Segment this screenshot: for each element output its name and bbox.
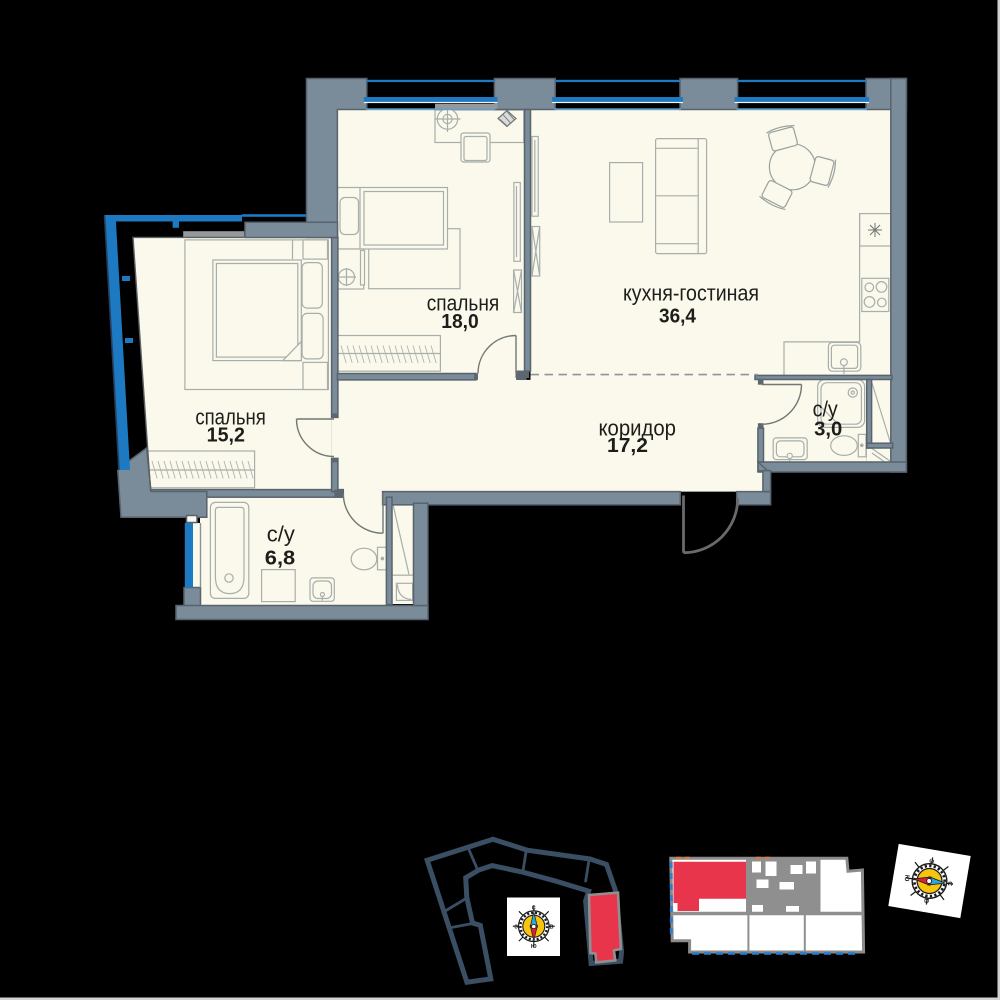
svg-text:15,2: 15,2 [207,423,245,446]
svg-text:36,4: 36,4 [659,305,697,328]
svg-text:17,2: 17,2 [607,434,648,457]
svg-text:с/у: с/у [267,522,295,547]
svg-text:кухня-гостиная: кухня-гостиная [623,281,759,306]
svg-text:6,8: 6,8 [265,547,295,570]
svg-text:3,0: 3,0 [814,418,842,441]
svg-text:18,0: 18,0 [441,310,479,333]
